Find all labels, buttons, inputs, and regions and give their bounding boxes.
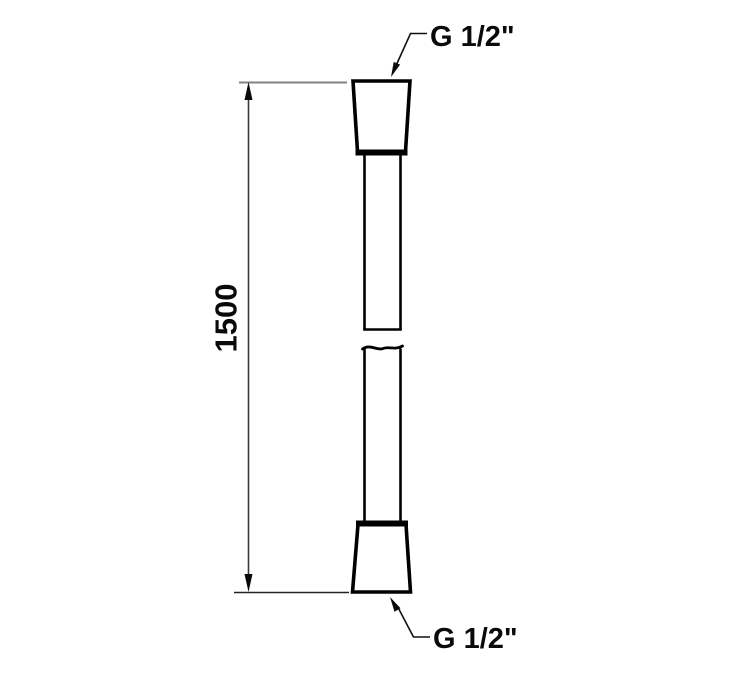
top-fitting xyxy=(353,81,410,152)
top-connection-callout: G 1/2" xyxy=(391,21,515,77)
top-connection-label: G 1/2" xyxy=(430,21,515,53)
bottom-fitting xyxy=(353,525,411,593)
bottom-connection-label: G 1/2" xyxy=(433,623,518,655)
dimension-value-label: 1500 xyxy=(209,284,244,353)
technical-drawing-page: 1500 G 1/2" xyxy=(0,0,732,691)
bottom-leader-line xyxy=(398,607,431,638)
dimension-arrow-top-icon xyxy=(245,82,253,100)
dimension-arrow-bottom-icon xyxy=(245,574,253,592)
hose-group xyxy=(353,81,411,592)
hose-break-wave xyxy=(363,346,403,349)
top-leader-line xyxy=(395,34,428,70)
shower-hose-technical-drawing: 1500 G 1/2" xyxy=(0,0,732,691)
top-leader-arrow-icon xyxy=(391,62,400,77)
bottom-connection-callout: G 1/2" xyxy=(390,597,518,655)
dimension-group: 1500 xyxy=(209,82,350,593)
